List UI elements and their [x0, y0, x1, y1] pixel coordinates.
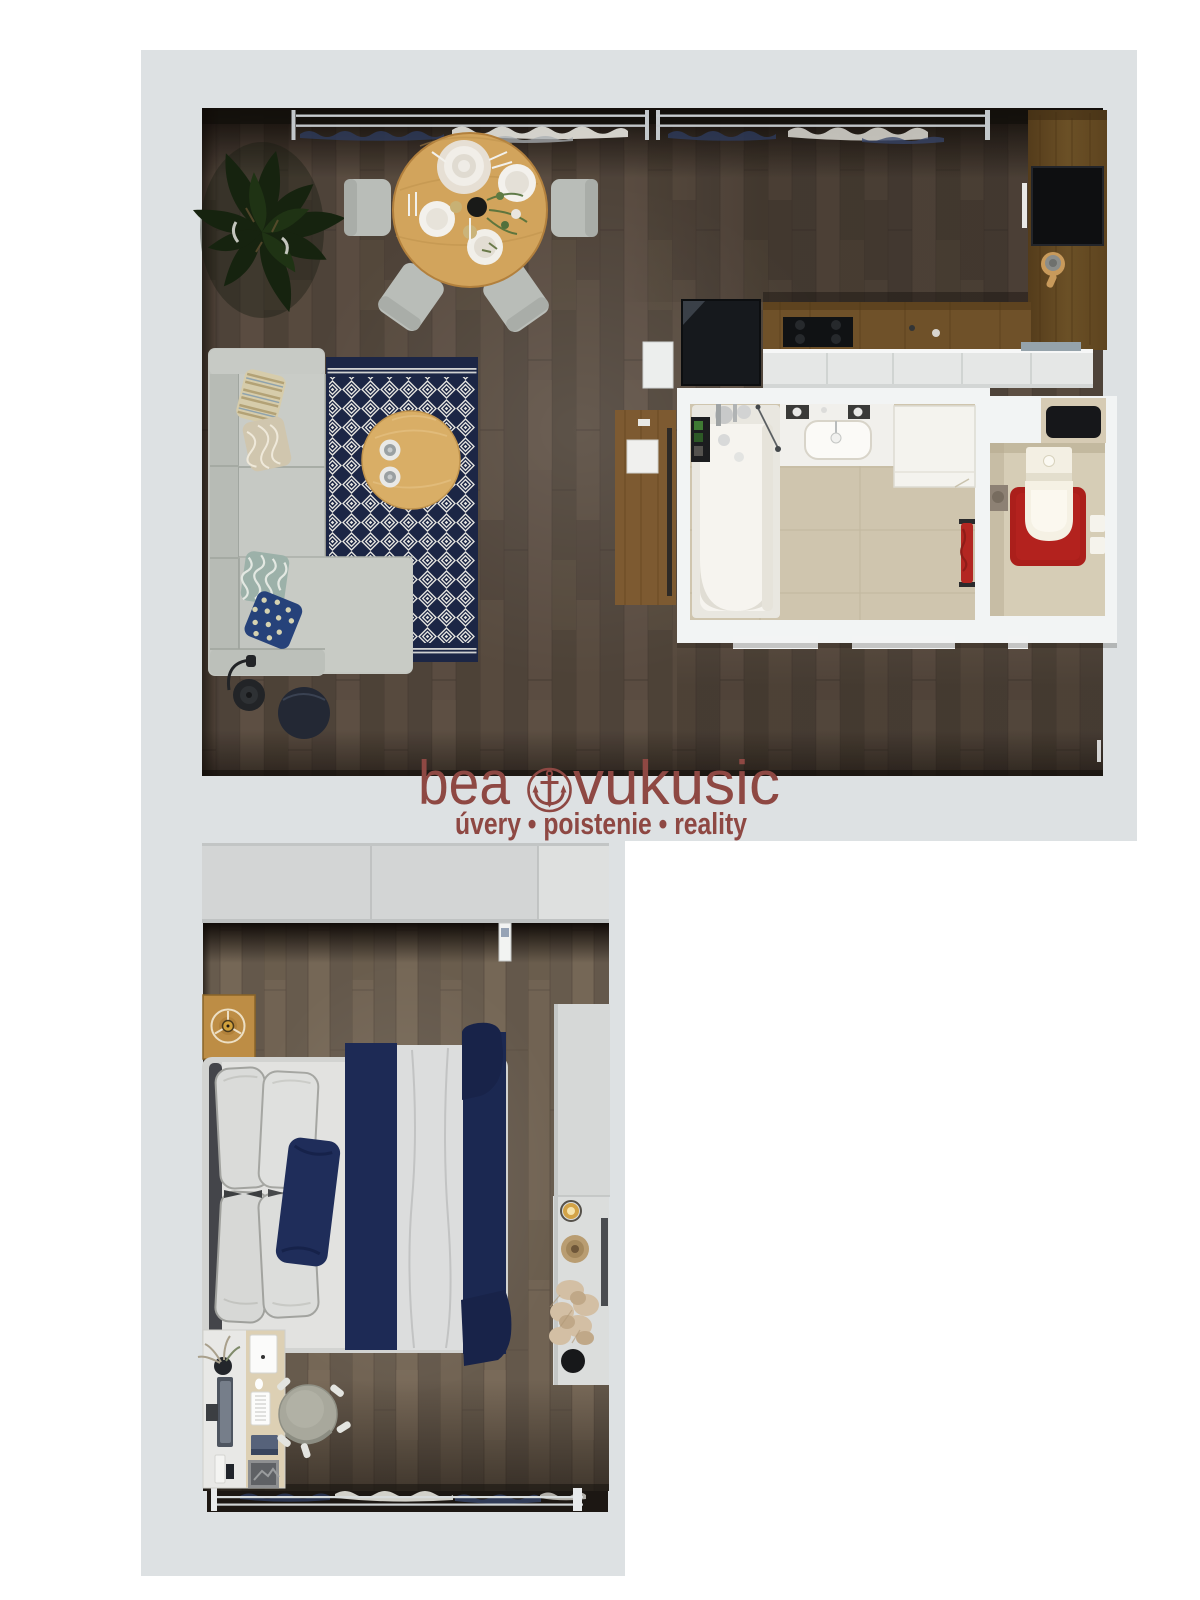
svg-text:úvery • poistenie • reality: úvery • poistenie • reality [455, 806, 748, 841]
